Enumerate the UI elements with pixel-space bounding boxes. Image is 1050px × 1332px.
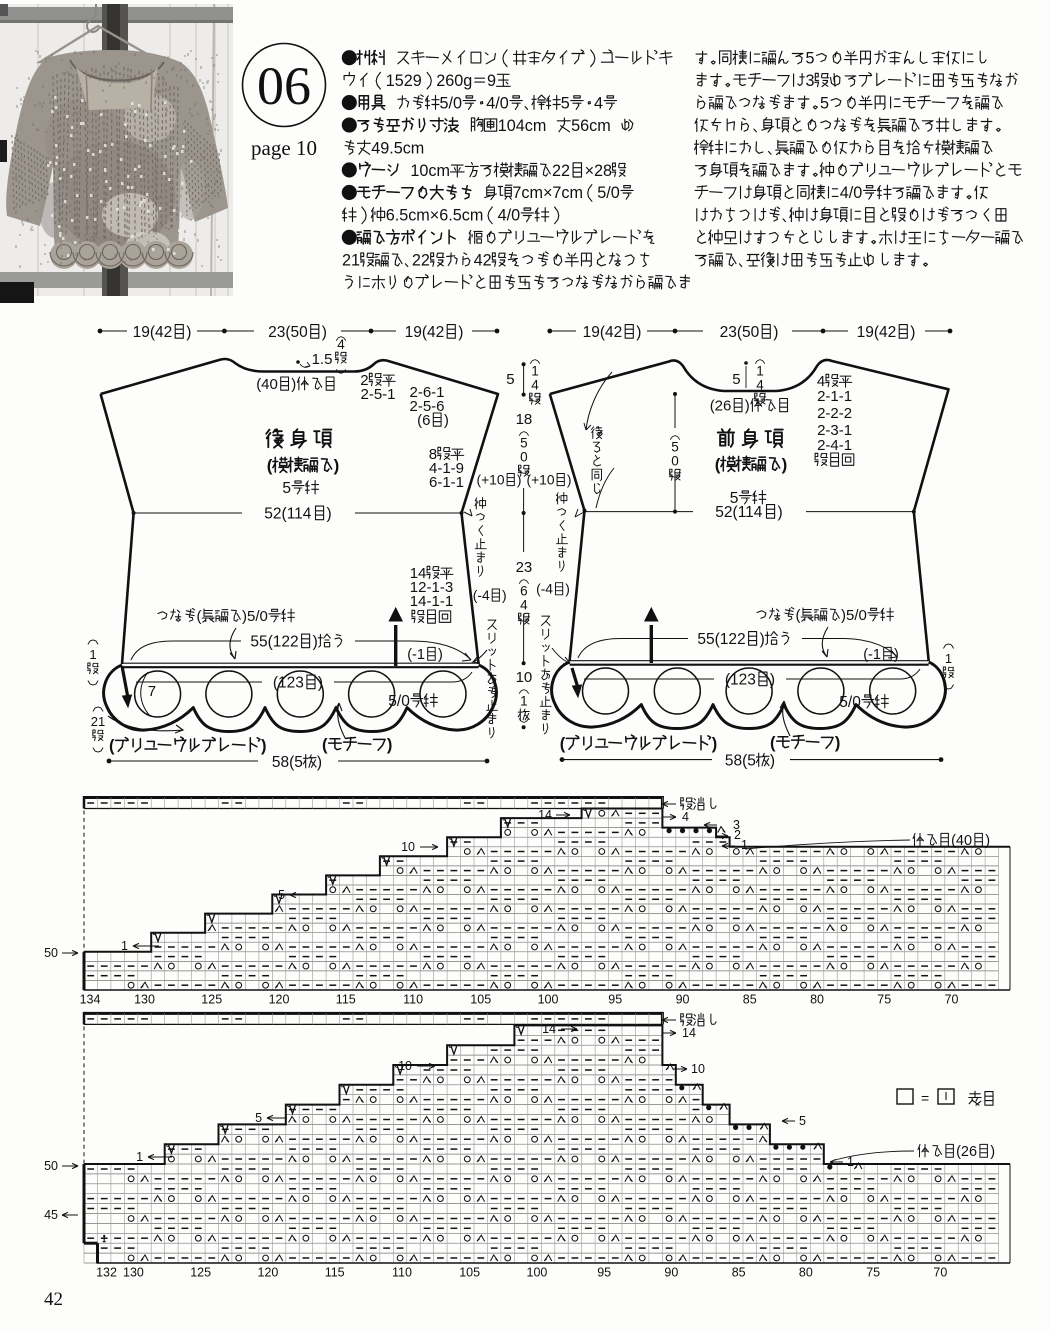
svg-text:52(114: 52(114 (264, 506, 311, 523)
svg-text:10: 10 (398, 1059, 412, 1073)
svg-text:1: 1 (520, 694, 528, 709)
svg-text:5: 5 (278, 888, 285, 902)
svg-text:2-4-1: 2-4-1 (817, 437, 852, 454)
svg-text:): ) (760, 631, 765, 648)
svg-text:): ) (773, 324, 778, 341)
svg-text:): ) (567, 473, 572, 488)
svg-text:(: ( (109, 737, 115, 755)
svg-text:115: 115 (336, 993, 356, 1007)
svg-text:): ) (327, 506, 332, 523)
svg-text:9: 9 (487, 72, 496, 90)
svg-text:1: 1 (121, 939, 128, 953)
svg-text:5: 5 (806, 50, 815, 68)
svg-text:): ) (712, 735, 718, 753)
svg-text:55(122: 55(122 (697, 631, 745, 648)
svg-text:5: 5 (506, 371, 514, 388)
svg-text:)5/0: )5/0 (242, 608, 268, 625)
svg-text:19(42: 19(42 (583, 324, 623, 341)
svg-text:130: 130 (134, 993, 155, 1007)
svg-text:4: 4 (594, 94, 603, 112)
svg-text:4/0: 4/0 (498, 207, 521, 225)
svg-text:): ) (782, 455, 788, 474)
svg-text:(40: (40 (256, 376, 278, 393)
svg-text:90: 90 (664, 1266, 678, 1280)
svg-text:18: 18 (516, 411, 533, 428)
svg-text:105: 105 (470, 993, 491, 1007)
svg-text:7: 7 (148, 683, 156, 700)
svg-text:115: 115 (325, 1266, 345, 1280)
svg-text:1529: 1529 (386, 72, 422, 90)
svg-text:5/0: 5/0 (597, 184, 620, 202)
svg-text:132: 132 (96, 1266, 117, 1280)
svg-text:): ) (835, 734, 841, 752)
svg-text:23(50: 23(50 (720, 324, 760, 341)
svg-text:): ) (985, 833, 990, 849)
svg-text:5: 5 (520, 436, 528, 451)
svg-text:58(5: 58(5 (725, 753, 756, 770)
svg-text:): ) (317, 754, 322, 771)
svg-text:): ) (990, 1144, 995, 1160)
svg-text:80: 80 (810, 993, 824, 1007)
svg-text:10: 10 (401, 840, 415, 854)
svg-text:1: 1 (945, 651, 952, 666)
svg-text:7cm×7cm: 7cm×7cm (512, 184, 583, 202)
svg-text:): ) (910, 324, 915, 341)
svg-text:95: 95 (608, 993, 622, 1007)
svg-text:5: 5 (255, 1111, 262, 1125)
svg-text:14: 14 (538, 808, 552, 822)
svg-text:×28: ×28 (585, 162, 612, 180)
svg-text:14: 14 (542, 1022, 556, 1036)
svg-text:6.5cm×6.5cm: 6.5cm×6.5cm (386, 207, 484, 225)
svg-text:): ) (636, 324, 641, 341)
svg-text:): ) (291, 376, 296, 393)
svg-text:0: 0 (671, 454, 679, 469)
svg-text:5: 5 (671, 440, 679, 455)
svg-text:): ) (334, 456, 340, 475)
svg-text:(26: (26 (710, 398, 732, 415)
svg-text:2-1-1: 2-1-1 (817, 388, 852, 405)
svg-text:(-1: (-1 (407, 647, 425, 663)
svg-text:95: 95 (597, 1266, 611, 1280)
svg-text:85: 85 (732, 1266, 746, 1280)
svg-text:10: 10 (691, 1062, 705, 1076)
svg-text:104cm: 104cm (498, 117, 547, 135)
svg-text:4: 4 (682, 810, 689, 824)
svg-text:): ) (318, 675, 323, 692)
svg-text:2-2-2: 2-2-2 (817, 405, 852, 422)
svg-text:5: 5 (820, 94, 829, 112)
svg-text:52(114: 52(114 (715, 504, 762, 521)
svg-text:3: 3 (806, 72, 815, 90)
svg-text:1.5: 1.5 (312, 351, 333, 368)
svg-text:(-4: (-4 (536, 582, 553, 597)
svg-text:120: 120 (269, 993, 290, 1007)
svg-text:6-1-1: 6-1-1 (429, 474, 464, 491)
svg-text:120: 120 (258, 1266, 279, 1280)
svg-text:42: 42 (44, 1289, 63, 1310)
svg-text:2-5-1: 2-5-1 (361, 386, 396, 403)
svg-text:58(5: 58(5 (272, 754, 303, 771)
svg-text:1: 1 (741, 838, 748, 852)
svg-text:5: 5 (282, 480, 291, 497)
svg-text:10: 10 (516, 669, 533, 686)
svg-text:6: 6 (520, 584, 528, 599)
svg-text:): ) (502, 588, 507, 603)
svg-text:4/0: 4/0 (486, 94, 509, 112)
svg-text:(-1: (-1 (863, 647, 881, 663)
svg-text:(: ( (770, 734, 776, 752)
svg-text:4/0: 4/0 (840, 184, 863, 202)
svg-text:49.5cm: 49.5cm (371, 139, 424, 157)
svg-text:)5/0: )5/0 (841, 607, 867, 624)
svg-text:23(50: 23(50 (268, 324, 308, 341)
svg-text:14: 14 (682, 1026, 696, 1040)
svg-text:4: 4 (756, 378, 764, 393)
svg-text:): ) (565, 582, 570, 597)
svg-text:): ) (261, 737, 267, 755)
svg-text:(: ( (267, 456, 273, 475)
svg-text:50: 50 (44, 1159, 58, 1173)
svg-text:19(42: 19(42 (857, 324, 897, 341)
svg-text:19(42: 19(42 (405, 324, 445, 341)
svg-text:105: 105 (459, 1266, 480, 1280)
svg-text:110: 110 (403, 993, 423, 1007)
svg-text:90: 90 (676, 993, 690, 1007)
svg-text:): ) (387, 736, 393, 754)
svg-text:4: 4 (520, 598, 528, 613)
svg-text:(: ( (715, 455, 721, 474)
svg-text:(26: (26 (956, 1144, 977, 1160)
svg-text:42: 42 (474, 252, 492, 270)
svg-text:260g: 260g (436, 72, 472, 90)
svg-text:1: 1 (531, 364, 539, 379)
svg-text:): ) (186, 324, 191, 341)
svg-text:2: 2 (734, 828, 741, 842)
svg-text:(123: (123 (273, 675, 304, 692)
svg-text:(-4: (-4 (473, 588, 490, 603)
svg-text:06: 06 (257, 56, 311, 116)
svg-text:(: ( (796, 607, 801, 624)
svg-text:22: 22 (412, 252, 430, 270)
svg-text:21: 21 (342, 252, 360, 270)
svg-text:(: ( (560, 735, 566, 753)
svg-text:): ) (745, 398, 750, 415)
svg-text:): ) (322, 324, 327, 341)
svg-text:5/0: 5/0 (440, 94, 463, 112)
svg-text:22: 22 (552, 162, 570, 180)
svg-text:14-1-1: 14-1-1 (410, 593, 453, 610)
svg-text:134: 134 (80, 993, 101, 1007)
svg-text:(+10: (+10 (527, 473, 555, 488)
svg-text:): ) (770, 672, 775, 689)
svg-text:5/0: 5/0 (388, 693, 410, 710)
svg-text:21: 21 (91, 714, 105, 729)
svg-text:4: 4 (531, 378, 539, 393)
svg-text:75: 75 (877, 993, 891, 1007)
svg-text:100: 100 (527, 1266, 548, 1280)
svg-text:): ) (313, 634, 318, 651)
svg-text:): ) (517, 473, 522, 488)
svg-text:5: 5 (730, 490, 739, 507)
svg-text:70: 70 (933, 1266, 947, 1280)
svg-text:0: 0 (520, 450, 528, 465)
svg-text:): ) (438, 647, 443, 663)
svg-text:125: 125 (190, 1266, 211, 1280)
svg-text:): ) (770, 753, 775, 770)
svg-text:45: 45 (44, 1208, 58, 1222)
svg-text:5/0: 5/0 (839, 694, 861, 711)
svg-text:56cm: 56cm (571, 117, 611, 135)
svg-text:(+10: (+10 (477, 473, 505, 488)
svg-text:5: 5 (732, 371, 740, 388)
svg-text:10cm: 10cm (410, 162, 450, 180)
svg-text:(6: (6 (417, 412, 430, 429)
svg-text:5: 5 (799, 1114, 806, 1128)
svg-text:=: = (921, 1090, 929, 1106)
svg-text:5: 5 (561, 94, 570, 112)
svg-text:): ) (778, 504, 783, 521)
svg-text:): ) (444, 412, 449, 429)
svg-text:55(122: 55(122 (250, 634, 298, 651)
svg-text:50: 50 (44, 946, 58, 960)
svg-text:4: 4 (337, 337, 345, 352)
svg-text:1: 1 (89, 647, 96, 662)
svg-text:100: 100 (538, 993, 559, 1007)
svg-text:page 10: page 10 (251, 136, 317, 160)
svg-text:110: 110 (392, 1266, 412, 1280)
svg-text:(123: (123 (725, 672, 756, 689)
svg-text:(40: (40 (951, 833, 972, 849)
svg-text:130: 130 (123, 1266, 144, 1280)
svg-text:19(42: 19(42 (133, 324, 173, 341)
svg-text:): ) (458, 324, 463, 341)
svg-text:(: ( (197, 608, 202, 625)
svg-text:75: 75 (866, 1266, 880, 1280)
svg-text:(: ( (322, 736, 328, 754)
svg-text:23: 23 (516, 559, 533, 576)
svg-text:80: 80 (799, 1266, 813, 1280)
svg-text:125: 125 (201, 993, 222, 1007)
svg-text:85: 85 (743, 993, 757, 1007)
svg-text:1: 1 (136, 1150, 143, 1164)
svg-text:1: 1 (756, 364, 764, 379)
svg-text:): ) (894, 647, 899, 663)
svg-text:70: 70 (945, 993, 959, 1007)
